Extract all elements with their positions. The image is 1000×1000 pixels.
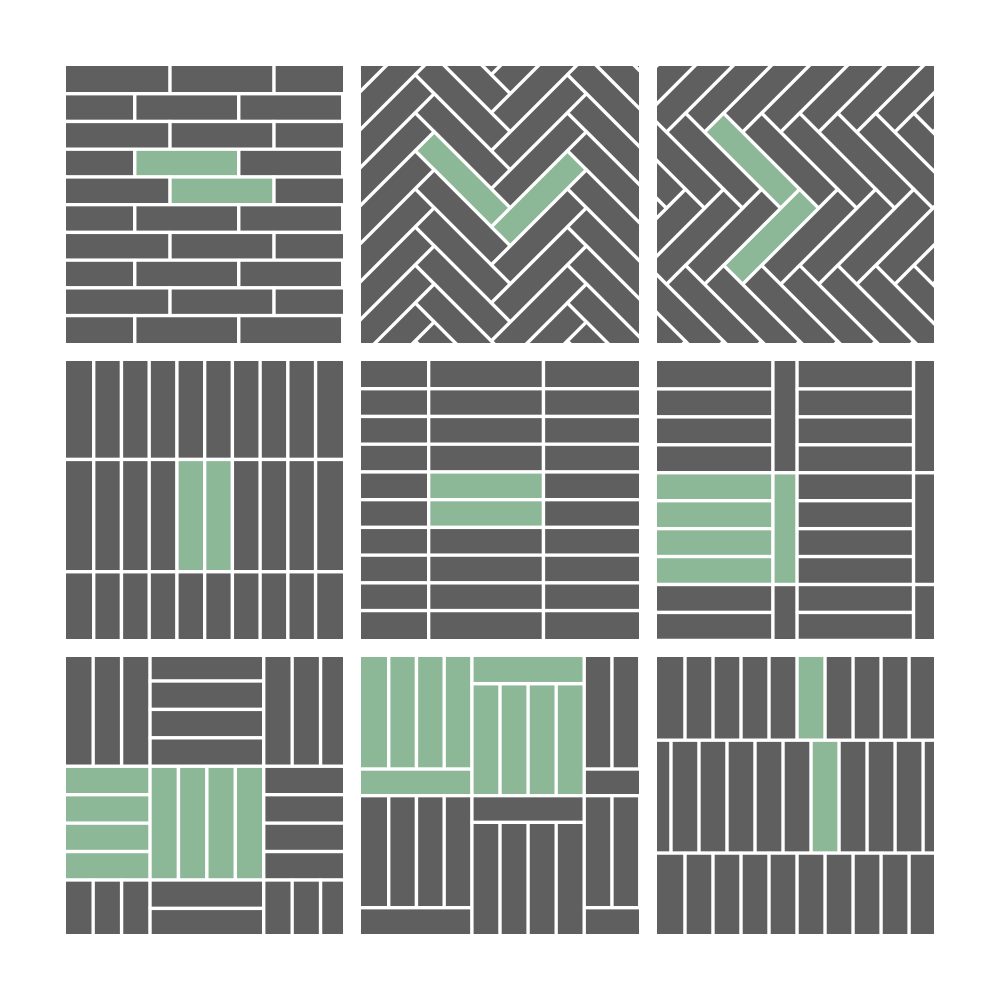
highlight-brick (66, 766, 150, 794)
brick (149, 361, 177, 459)
brick (713, 853, 741, 934)
pattern-swatch-running-bond-horizontal (66, 66, 343, 343)
brick (741, 657, 769, 740)
brick (585, 795, 613, 907)
brick (150, 681, 264, 709)
brick (557, 822, 585, 934)
brick (657, 853, 685, 934)
brick (321, 880, 344, 934)
brick (881, 853, 909, 934)
highlight-brick (429, 500, 544, 528)
brick (264, 794, 344, 822)
pattern-swatch-ladder-blocks (657, 361, 934, 638)
brick (773, 361, 797, 473)
brick (288, 460, 316, 572)
brick (769, 853, 797, 934)
brick (361, 611, 429, 639)
brick (150, 908, 264, 934)
brick (343, 316, 344, 344)
brick (260, 460, 288, 572)
brick (825, 853, 853, 934)
brick (429, 611, 544, 639)
brick (135, 260, 239, 288)
brick (232, 361, 260, 459)
stack-bond-horizontal-pattern (361, 361, 638, 638)
highlight-brick (361, 769, 472, 796)
brick (343, 94, 344, 122)
brick (727, 740, 755, 853)
brick (150, 709, 264, 737)
brick (121, 460, 149, 572)
brick (66, 361, 94, 459)
highlight-brick (235, 766, 263, 880)
brick (867, 740, 895, 853)
brick (713, 657, 741, 740)
tile-pattern-board (0, 0, 1000, 1000)
brick (343, 205, 344, 233)
brick (755, 740, 783, 853)
highlight-brick (657, 473, 773, 501)
brick (343, 260, 344, 288)
herringbone-chevron-down-pattern (361, 66, 638, 343)
brick (316, 361, 344, 459)
brick (122, 880, 150, 934)
pattern-swatch-vertical-blocks-capped (361, 657, 638, 934)
brick (66, 66, 170, 94)
pattern-swatch-herringbone-chevron-right (657, 66, 934, 343)
brick (913, 473, 934, 585)
highlight-brick (66, 823, 150, 851)
brick (500, 822, 528, 934)
pattern-swatch-herringbone-chevron-down (361, 66, 638, 343)
brick (361, 389, 429, 417)
brick (881, 657, 909, 740)
brick (797, 585, 913, 613)
brick (66, 260, 135, 288)
brick (797, 529, 913, 557)
brick (232, 572, 260, 639)
highlight-brick (657, 557, 773, 585)
brick (292, 880, 320, 934)
highlight-brick (657, 529, 773, 557)
brick (239, 316, 343, 344)
brick (472, 822, 500, 934)
highlight-brick (135, 149, 239, 177)
brick (657, 445, 773, 473)
brick (170, 232, 274, 260)
brick (343, 149, 344, 177)
brick (685, 657, 713, 740)
highlight-brick (657, 501, 773, 529)
brick (66, 880, 93, 934)
brick (544, 472, 639, 500)
brick (657, 389, 773, 417)
brick (177, 572, 205, 639)
highlight-brick (811, 740, 839, 853)
highlight-brick (207, 766, 235, 880)
brick (671, 740, 699, 853)
pattern-swatch-basketweave (66, 657, 343, 934)
brick (585, 769, 639, 796)
highlight-brick (773, 473, 797, 585)
brick (274, 232, 343, 260)
brick (909, 657, 934, 740)
highlight-brick (205, 460, 233, 572)
highlight-brick (170, 177, 274, 205)
brick (853, 657, 881, 740)
brick (66, 121, 170, 149)
brick (150, 738, 264, 766)
brick (783, 740, 811, 853)
brick (316, 460, 344, 572)
running-bond-horizontal-pattern (66, 66, 343, 343)
brick (585, 907, 639, 934)
brick (361, 445, 429, 473)
brick (93, 880, 121, 934)
brick (66, 94, 135, 122)
brick (264, 823, 344, 851)
brick (773, 585, 797, 639)
brick (612, 795, 638, 907)
brick (66, 149, 135, 177)
brick (361, 472, 429, 500)
brick (94, 361, 122, 459)
brick (544, 389, 639, 417)
brick (429, 445, 544, 473)
brick (797, 389, 913, 417)
brick (544, 611, 639, 639)
highlight-brick (500, 683, 528, 795)
brick (797, 613, 913, 639)
brick (205, 361, 233, 459)
brick (797, 473, 913, 501)
brick (923, 740, 934, 853)
brick (361, 500, 429, 528)
brick (612, 657, 638, 769)
brick (321, 657, 344, 766)
brick (361, 795, 389, 907)
brick (429, 528, 544, 556)
brick (292, 657, 320, 766)
brick (361, 583, 429, 611)
brick (544, 445, 639, 473)
brick (239, 94, 343, 122)
brick (66, 572, 94, 639)
brick (361, 528, 429, 556)
brick (657, 417, 773, 445)
brick (797, 445, 913, 473)
brick (544, 555, 639, 583)
brick (264, 880, 292, 934)
brick (170, 288, 274, 316)
brick (93, 657, 121, 766)
brick (685, 853, 713, 934)
brick (544, 417, 639, 445)
highlight-brick (472, 683, 500, 795)
brick (121, 361, 149, 459)
highlight-brick (472, 657, 584, 684)
brick (316, 572, 344, 639)
brick (66, 205, 135, 233)
pattern-swatch-stack-bond-vertical (66, 361, 343, 638)
highlight-brick (389, 657, 417, 769)
brick (149, 572, 177, 639)
brick (657, 740, 671, 853)
brick (135, 94, 239, 122)
highlight-brick (445, 657, 473, 769)
stack-bond-vertical-pattern (66, 361, 343, 638)
brick (66, 288, 170, 316)
highlight-brick (797, 657, 825, 740)
brick (150, 880, 264, 908)
vertical-blocks-capped-pattern (361, 657, 638, 934)
brick (657, 585, 773, 613)
brick (177, 361, 205, 459)
brick (797, 361, 913, 389)
brick (895, 740, 923, 853)
brick (544, 361, 639, 389)
pattern-swatch-running-bond-vertical (657, 657, 934, 934)
brick (361, 417, 429, 445)
highlight-brick (150, 766, 178, 880)
highlight-brick (178, 766, 206, 880)
brick (699, 740, 727, 853)
highlight-brick (66, 794, 150, 822)
brick (741, 853, 769, 934)
brick (909, 853, 934, 934)
brick (232, 460, 260, 572)
brick (544, 583, 639, 611)
brick (264, 766, 344, 794)
brick (274, 177, 343, 205)
brick (389, 795, 417, 907)
brick (170, 121, 274, 149)
brick (288, 361, 316, 459)
brick (150, 657, 264, 681)
brick (429, 583, 544, 611)
brick (121, 572, 149, 639)
brick (66, 460, 94, 572)
brick (769, 657, 797, 740)
brick (528, 822, 556, 934)
brick (657, 361, 773, 389)
brick (797, 417, 913, 445)
brick (205, 572, 233, 639)
brick (66, 316, 135, 344)
highlight-brick (417, 657, 445, 769)
brick (135, 316, 239, 344)
brick (797, 557, 913, 585)
brick (94, 572, 122, 639)
brick (274, 66, 343, 94)
brick (853, 853, 881, 934)
highlight-brick (66, 851, 150, 879)
brick (239, 260, 343, 288)
brick (260, 361, 288, 459)
brick (445, 795, 473, 907)
brick (135, 205, 239, 233)
brick (66, 177, 170, 205)
brick (544, 500, 639, 528)
brick (913, 585, 934, 639)
brick (472, 795, 584, 822)
highlight-brick (528, 683, 556, 795)
brick (361, 907, 472, 934)
brick (417, 795, 445, 907)
brick (274, 288, 343, 316)
brick (274, 121, 343, 149)
brick (264, 657, 292, 766)
brick (149, 460, 177, 572)
brick (544, 528, 639, 556)
brick (585, 657, 613, 769)
brick (361, 361, 429, 389)
brick (825, 657, 853, 740)
highlight-brick (361, 657, 389, 769)
brick (288, 572, 316, 639)
brick (429, 389, 544, 417)
brick (94, 460, 122, 572)
brick (361, 555, 429, 583)
brick (122, 657, 150, 766)
basketweave-pattern (66, 657, 343, 934)
brick (657, 613, 773, 639)
brick (797, 501, 913, 529)
herringbone-chevron-right-pattern (657, 66, 934, 343)
brick (66, 657, 93, 766)
ladder-blocks-pattern (657, 361, 934, 638)
brick (239, 149, 343, 177)
brick (913, 361, 934, 473)
highlight-brick (429, 472, 544, 500)
brick (66, 232, 170, 260)
highlight-brick (557, 683, 585, 795)
brick (239, 205, 343, 233)
brick (260, 572, 288, 639)
highlight-brick (177, 460, 205, 572)
brick (839, 740, 867, 853)
brick (429, 361, 544, 389)
pattern-swatch-stack-bond-horizontal (361, 361, 638, 638)
brick (264, 851, 344, 879)
brick (797, 853, 825, 934)
brick (429, 555, 544, 583)
running-bond-vertical-pattern (657, 657, 934, 934)
brick (170, 66, 274, 94)
brick (429, 417, 544, 445)
brick (657, 657, 685, 740)
